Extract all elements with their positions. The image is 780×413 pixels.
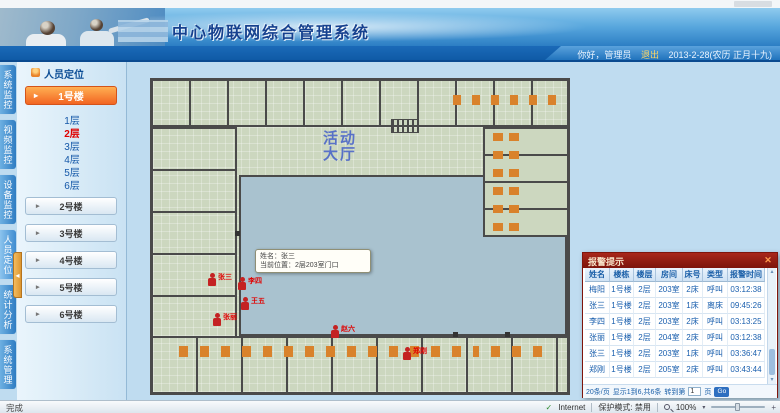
date-text: 2013-2-28(农历 正月十九) xyxy=(668,50,772,60)
col-bed: 床号 xyxy=(683,268,703,282)
building-4-button[interactable]: ▸ 4号楼 xyxy=(25,251,117,269)
alarm-scrollbar[interactable]: ▴ ▾ xyxy=(767,268,776,384)
zoom-in-icon[interactable]: + xyxy=(771,403,776,412)
sidebar-panel-title: 人员定位 xyxy=(44,66,84,81)
header-banner: 中心物联网综合管理系统 xyxy=(0,8,780,46)
building-1-button[interactable]: ▸ 1号楼 xyxy=(25,86,117,105)
person-marker[interactable]: 郑刚 xyxy=(403,347,411,360)
col-time: 报警时间 xyxy=(728,268,765,282)
cell-time: 03:43:44 xyxy=(728,362,765,378)
alarm-titlebar[interactable]: 报警提示 ✕ xyxy=(583,253,777,268)
cell-floor: 2层 xyxy=(634,330,656,346)
table-row[interactable]: 张三 1号楼 2层 203室 1床 呼叫 03:36:47 xyxy=(585,346,765,362)
cell-type: 呼叫 xyxy=(703,314,728,330)
per-page-text: 20条/页 xyxy=(586,387,610,397)
plan-top-beds xyxy=(453,95,563,105)
door-marker xyxy=(453,332,458,337)
person-icon xyxy=(331,330,339,338)
check-icon: ✓ xyxy=(546,403,553,412)
cell-bed: 2床 xyxy=(683,314,703,330)
divider xyxy=(657,403,658,412)
cell-type: 呼叫 xyxy=(703,346,728,362)
plan-bottom-rooms xyxy=(153,336,567,392)
col-type: 类型 xyxy=(703,268,728,282)
scroll-up-icon[interactable]: ▴ xyxy=(768,268,776,276)
greeting-text: 你好，管理员 xyxy=(577,50,631,60)
door-marker xyxy=(505,332,510,337)
cell-name: 张丽 xyxy=(585,330,610,346)
person-marker[interactable]: 张丽 xyxy=(213,313,221,326)
cell-name: 张三 xyxy=(585,346,610,362)
person-icon xyxy=(208,278,216,286)
cell-floor: 2层 xyxy=(634,314,656,330)
zone-text: Internet xyxy=(558,403,585,412)
app-window: 中心物联网综合管理系统 你好，管理员 退出 2013-2-28(农历 正月十九)… xyxy=(0,0,780,413)
scroll-down-icon[interactable]: ▾ xyxy=(768,376,776,384)
page-number-input[interactable] xyxy=(688,387,701,396)
building-1-label: 1号楼 xyxy=(58,88,84,103)
alarm-table-header: 姓名 楼栋 楼层 房间 床号 类型 报警时间 xyxy=(585,268,765,282)
go-button[interactable]: Go xyxy=(714,387,729,397)
building-6-button[interactable]: ▸ 6号楼 xyxy=(25,305,117,323)
user-bar-text: 你好，管理员 退出 2013-2-28(农历 正月十九) xyxy=(577,48,772,61)
person-tooltip: 姓名：张三 当前位置：2层203室门口 xyxy=(255,249,371,273)
cell-type: 离床 xyxy=(703,298,728,314)
cell-floor: 2层 xyxy=(634,346,656,362)
building-2-label: 2号楼 xyxy=(59,200,82,213)
floor-item-1[interactable]: 1层 xyxy=(17,112,127,124)
cell-type: 呼叫 xyxy=(703,282,728,298)
plan-right-rooms xyxy=(483,127,567,237)
building-3-button[interactable]: ▸ 3号楼 xyxy=(25,224,117,242)
status-right-group: ✓ Internet 保护模式: 禁用 100% ▾ + xyxy=(546,401,776,413)
person-marker[interactable]: 张三 xyxy=(208,273,216,286)
alarm-table: 姓名 楼栋 楼层 房间 床号 类型 报警时间 梅阳 1号楼 2层 203室 2床… xyxy=(585,268,765,378)
tooltip-line2: 当前位置：2层203室门口 xyxy=(260,261,366,270)
cell-bed: 2床 xyxy=(683,362,703,378)
floor-item-4[interactable]: 4层 xyxy=(17,151,127,163)
building-5-button[interactable]: ▸ 5号楼 xyxy=(25,278,117,296)
cell-floor: 2层 xyxy=(634,298,656,314)
cell-building: 1号楼 xyxy=(610,314,634,330)
person-marker[interactable]: 赵六 xyxy=(331,325,339,338)
zoom-level-text[interactable]: 100% xyxy=(676,403,696,412)
cell-room: 203室 xyxy=(656,314,683,330)
browser-status-bar: 完成 ✓ Internet 保护模式: 禁用 100% ▾ + xyxy=(0,400,780,413)
cell-name: 李四 xyxy=(585,314,610,330)
cell-name: 郑刚 xyxy=(585,362,610,378)
building-6-label: 6号楼 xyxy=(59,308,82,321)
expand-arrow-icon: ▸ xyxy=(36,283,40,291)
expand-arrow-icon: ▸ xyxy=(36,310,40,318)
plan-bed xyxy=(491,346,553,357)
col-name: 姓名 xyxy=(585,268,610,282)
col-room: 房间 xyxy=(656,268,683,282)
photo-person-head xyxy=(90,19,103,31)
protected-mode-text: 保护模式: 禁用 xyxy=(598,402,650,413)
floor-item-3[interactable]: 3层 xyxy=(17,138,127,150)
sidebar-collapse-handle[interactable]: ◂ xyxy=(13,252,22,298)
zoom-slider-thumb[interactable] xyxy=(735,403,740,411)
cell-name: 梅阳 xyxy=(585,282,610,298)
col-floor: 楼层 xyxy=(634,268,656,282)
status-text: 完成 xyxy=(6,402,23,413)
tab-system-monitor[interactable]: 系统监控 xyxy=(0,64,17,115)
tab-device-monitor[interactable]: 设备监控 xyxy=(0,174,17,225)
magnifier-icon xyxy=(664,404,670,410)
person-name-label: 郑刚 xyxy=(413,346,427,356)
building-5-label: 5号楼 xyxy=(59,281,82,294)
plan-left-rooms xyxy=(153,127,237,337)
pagination-info: 显示1到6,共6条 xyxy=(613,387,662,397)
close-icon[interactable]: ✕ xyxy=(762,254,774,266)
cell-bed: 2床 xyxy=(683,282,703,298)
person-icon xyxy=(31,68,40,77)
cell-floor: 2层 xyxy=(634,362,656,378)
cell-type: 呼叫 xyxy=(703,362,728,378)
page-unit-label: 页 xyxy=(704,387,711,397)
plan-area-label-line2: 大厅 xyxy=(323,147,357,163)
cell-time: 03:13:25 xyxy=(728,314,765,330)
expand-arrow-icon: ▸ xyxy=(34,91,38,100)
plan-area-label-line1: 活动 xyxy=(323,131,357,147)
table-row[interactable]: 张丽 1号楼 2层 204室 2床 呼叫 03:12:38 xyxy=(585,330,765,346)
window-controls-fragment xyxy=(734,1,772,7)
photo-person-head xyxy=(40,21,55,35)
scrollbar-thumb[interactable] xyxy=(769,349,775,375)
browser-top-strip xyxy=(0,0,780,8)
tab-video-monitor[interactable]: 视频监控 xyxy=(0,119,17,170)
goto-label: 转到第 xyxy=(664,387,685,397)
person-name-label: 张三 xyxy=(218,272,232,282)
building-2-button[interactable]: ▸ 2号楼 xyxy=(25,197,117,215)
app-title: 中心物联网综合管理系统 xyxy=(172,19,370,43)
expand-arrow-icon: ▸ xyxy=(36,202,40,210)
cell-room: 203室 xyxy=(656,346,683,362)
table-row[interactable]: 梅阳 1号楼 2层 203室 2床 呼叫 03:12:38 xyxy=(585,282,765,298)
person-name-label: 李四 xyxy=(248,276,262,286)
photo-person-body xyxy=(26,34,66,46)
person-icon xyxy=(238,282,246,290)
collapse-handle-icon: ◂ xyxy=(15,271,19,280)
tab-system-settings[interactable]: 系统管理 xyxy=(0,339,17,390)
alarm-pagination: 20条/页 显示1到6,共6条 转到第 页 Go xyxy=(583,384,777,398)
plan-bed xyxy=(493,131,503,231)
person-name-label: 张丽 xyxy=(223,312,237,322)
cell-time: 03:12:38 xyxy=(728,330,765,346)
cell-building: 1号楼 xyxy=(610,362,634,378)
plan-stairs xyxy=(391,119,419,133)
plan-area-label: 活动 大厅 xyxy=(323,131,357,163)
tooltip-line1: 姓名：张三 xyxy=(260,252,366,261)
floor-item-2-active[interactable]: 2层 xyxy=(17,125,127,137)
cell-room: 205室 xyxy=(656,362,683,378)
cell-building: 1号楼 xyxy=(610,282,634,298)
person-marker[interactable]: 李四 xyxy=(238,277,246,290)
dropdown-icon[interactable]: ▾ xyxy=(702,404,705,411)
cell-type: 呼叫 xyxy=(703,330,728,346)
floor-item-5[interactable]: 5层 xyxy=(17,164,127,176)
col-building: 楼栋 xyxy=(610,268,634,282)
cell-name: 张三 xyxy=(585,298,610,314)
zoom-slider[interactable] xyxy=(711,406,765,408)
table-row[interactable]: 张三 1号楼 2层 203室 1床 离床 09:45:26 xyxy=(585,298,765,314)
cell-bed: 2床 xyxy=(683,330,703,346)
cell-room: 203室 xyxy=(656,298,683,314)
cell-bed: 1床 xyxy=(683,298,703,314)
alarm-title: 报警提示 xyxy=(588,255,624,268)
person-marker[interactable]: 王五 xyxy=(241,297,249,310)
cell-floor: 2层 xyxy=(634,282,656,298)
person-name-label: 赵六 xyxy=(341,324,355,334)
building-4-label: 4号楼 xyxy=(59,254,82,267)
floor-item-6[interactable]: 6层 xyxy=(17,177,127,189)
censored-title-block xyxy=(118,20,168,42)
cell-time: 03:12:38 xyxy=(728,282,765,298)
table-row[interactable]: 郑刚 1号楼 2层 205室 2床 呼叫 03:43:44 xyxy=(585,362,765,378)
person-name-label: 王五 xyxy=(251,296,265,306)
alarm-panel: 报警提示 ✕ 姓名 楼栋 楼层 房间 床号 类型 报警时间 梅阳 1号楼 2层 … xyxy=(582,252,778,398)
expand-arrow-icon: ▸ xyxy=(36,256,40,264)
table-row[interactable]: 李四 1号楼 2层 203室 2床 呼叫 03:13:25 xyxy=(585,314,765,330)
logout-link[interactable]: 退出 xyxy=(641,50,659,60)
floor-plan[interactable]: 活动 大厅 张三 李四 王五 张丽 赵六 xyxy=(150,78,570,395)
person-icon xyxy=(241,302,249,310)
cell-building: 1号楼 xyxy=(610,298,634,314)
cell-building: 1号楼 xyxy=(610,346,634,362)
sidebar-panel: 人员定位 ▸ 1号楼 1层 2层 3层 4层 5层 6层 ▸ 2号楼 ▸ 3号楼… xyxy=(17,62,127,400)
plan-bed xyxy=(179,346,479,357)
door-marker xyxy=(235,231,240,236)
cell-room: 204室 xyxy=(656,330,683,346)
divider xyxy=(591,403,592,412)
cell-time: 03:36:47 xyxy=(728,346,765,362)
photo-person-body xyxy=(80,31,114,46)
person-icon xyxy=(403,352,411,360)
person-icon xyxy=(213,318,221,326)
building-3-label: 3号楼 xyxy=(59,227,82,240)
user-bar: 你好，管理员 退出 2013-2-28(农历 正月十九) xyxy=(0,46,780,62)
expand-arrow-icon: ▸ xyxy=(36,229,40,237)
plan-bed xyxy=(509,131,519,231)
cell-building: 1号楼 xyxy=(610,330,634,346)
cell-bed: 1床 xyxy=(683,346,703,362)
cell-room: 203室 xyxy=(656,282,683,298)
cell-time: 09:45:26 xyxy=(728,298,765,314)
